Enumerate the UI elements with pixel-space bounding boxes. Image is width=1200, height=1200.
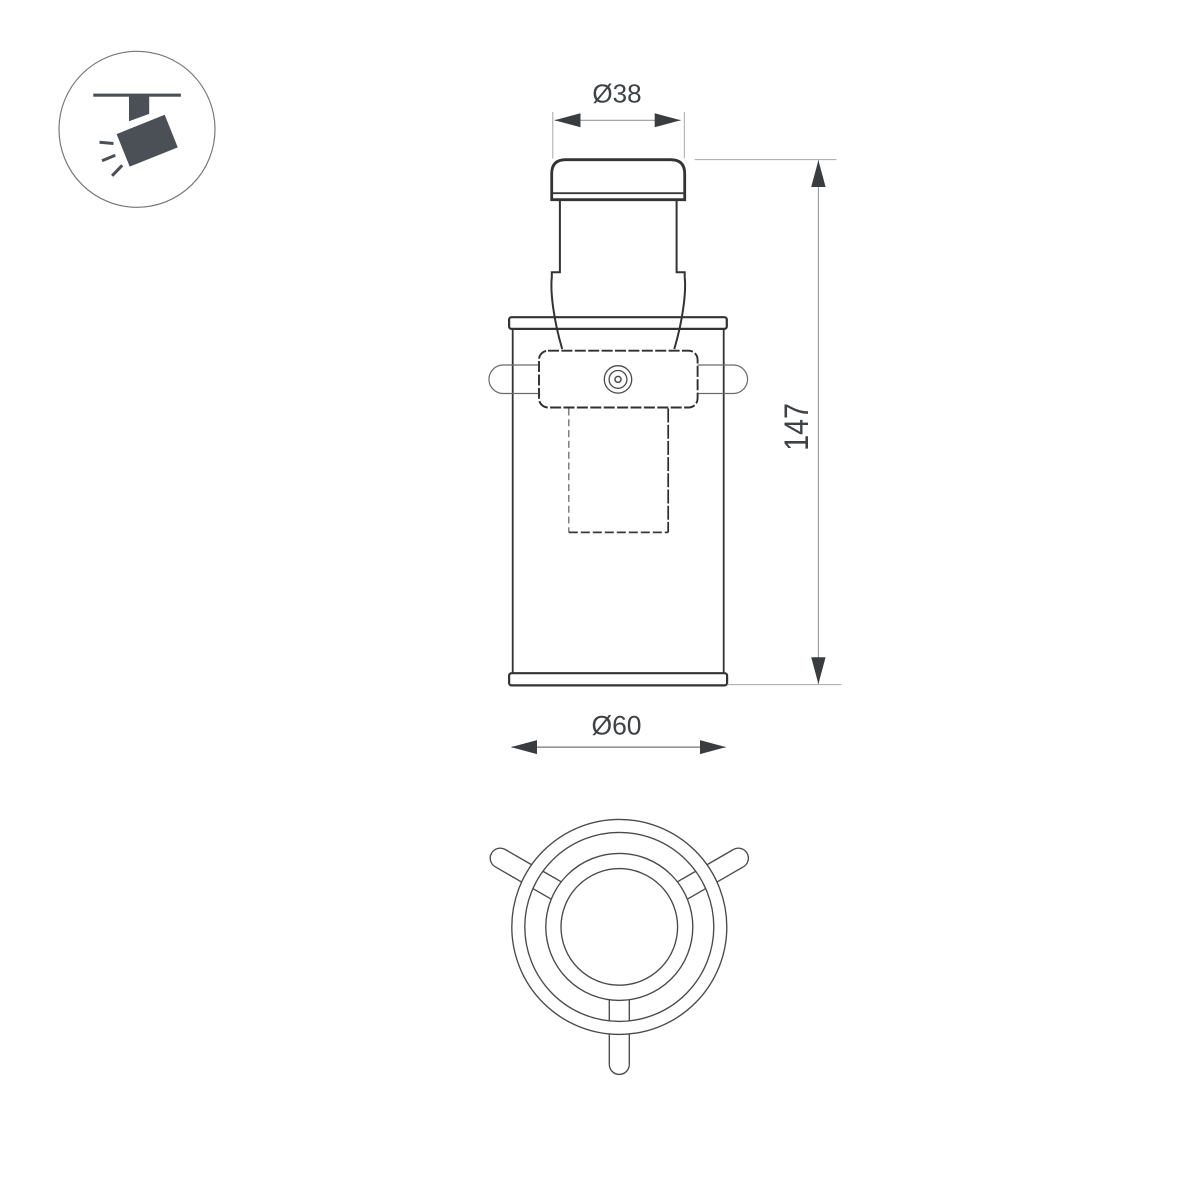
svg-text:Ø60: Ø60 bbox=[591, 711, 641, 741]
svg-text:147: 147 bbox=[778, 403, 816, 451]
svg-text:Ø38: Ø38 bbox=[592, 79, 641, 109]
